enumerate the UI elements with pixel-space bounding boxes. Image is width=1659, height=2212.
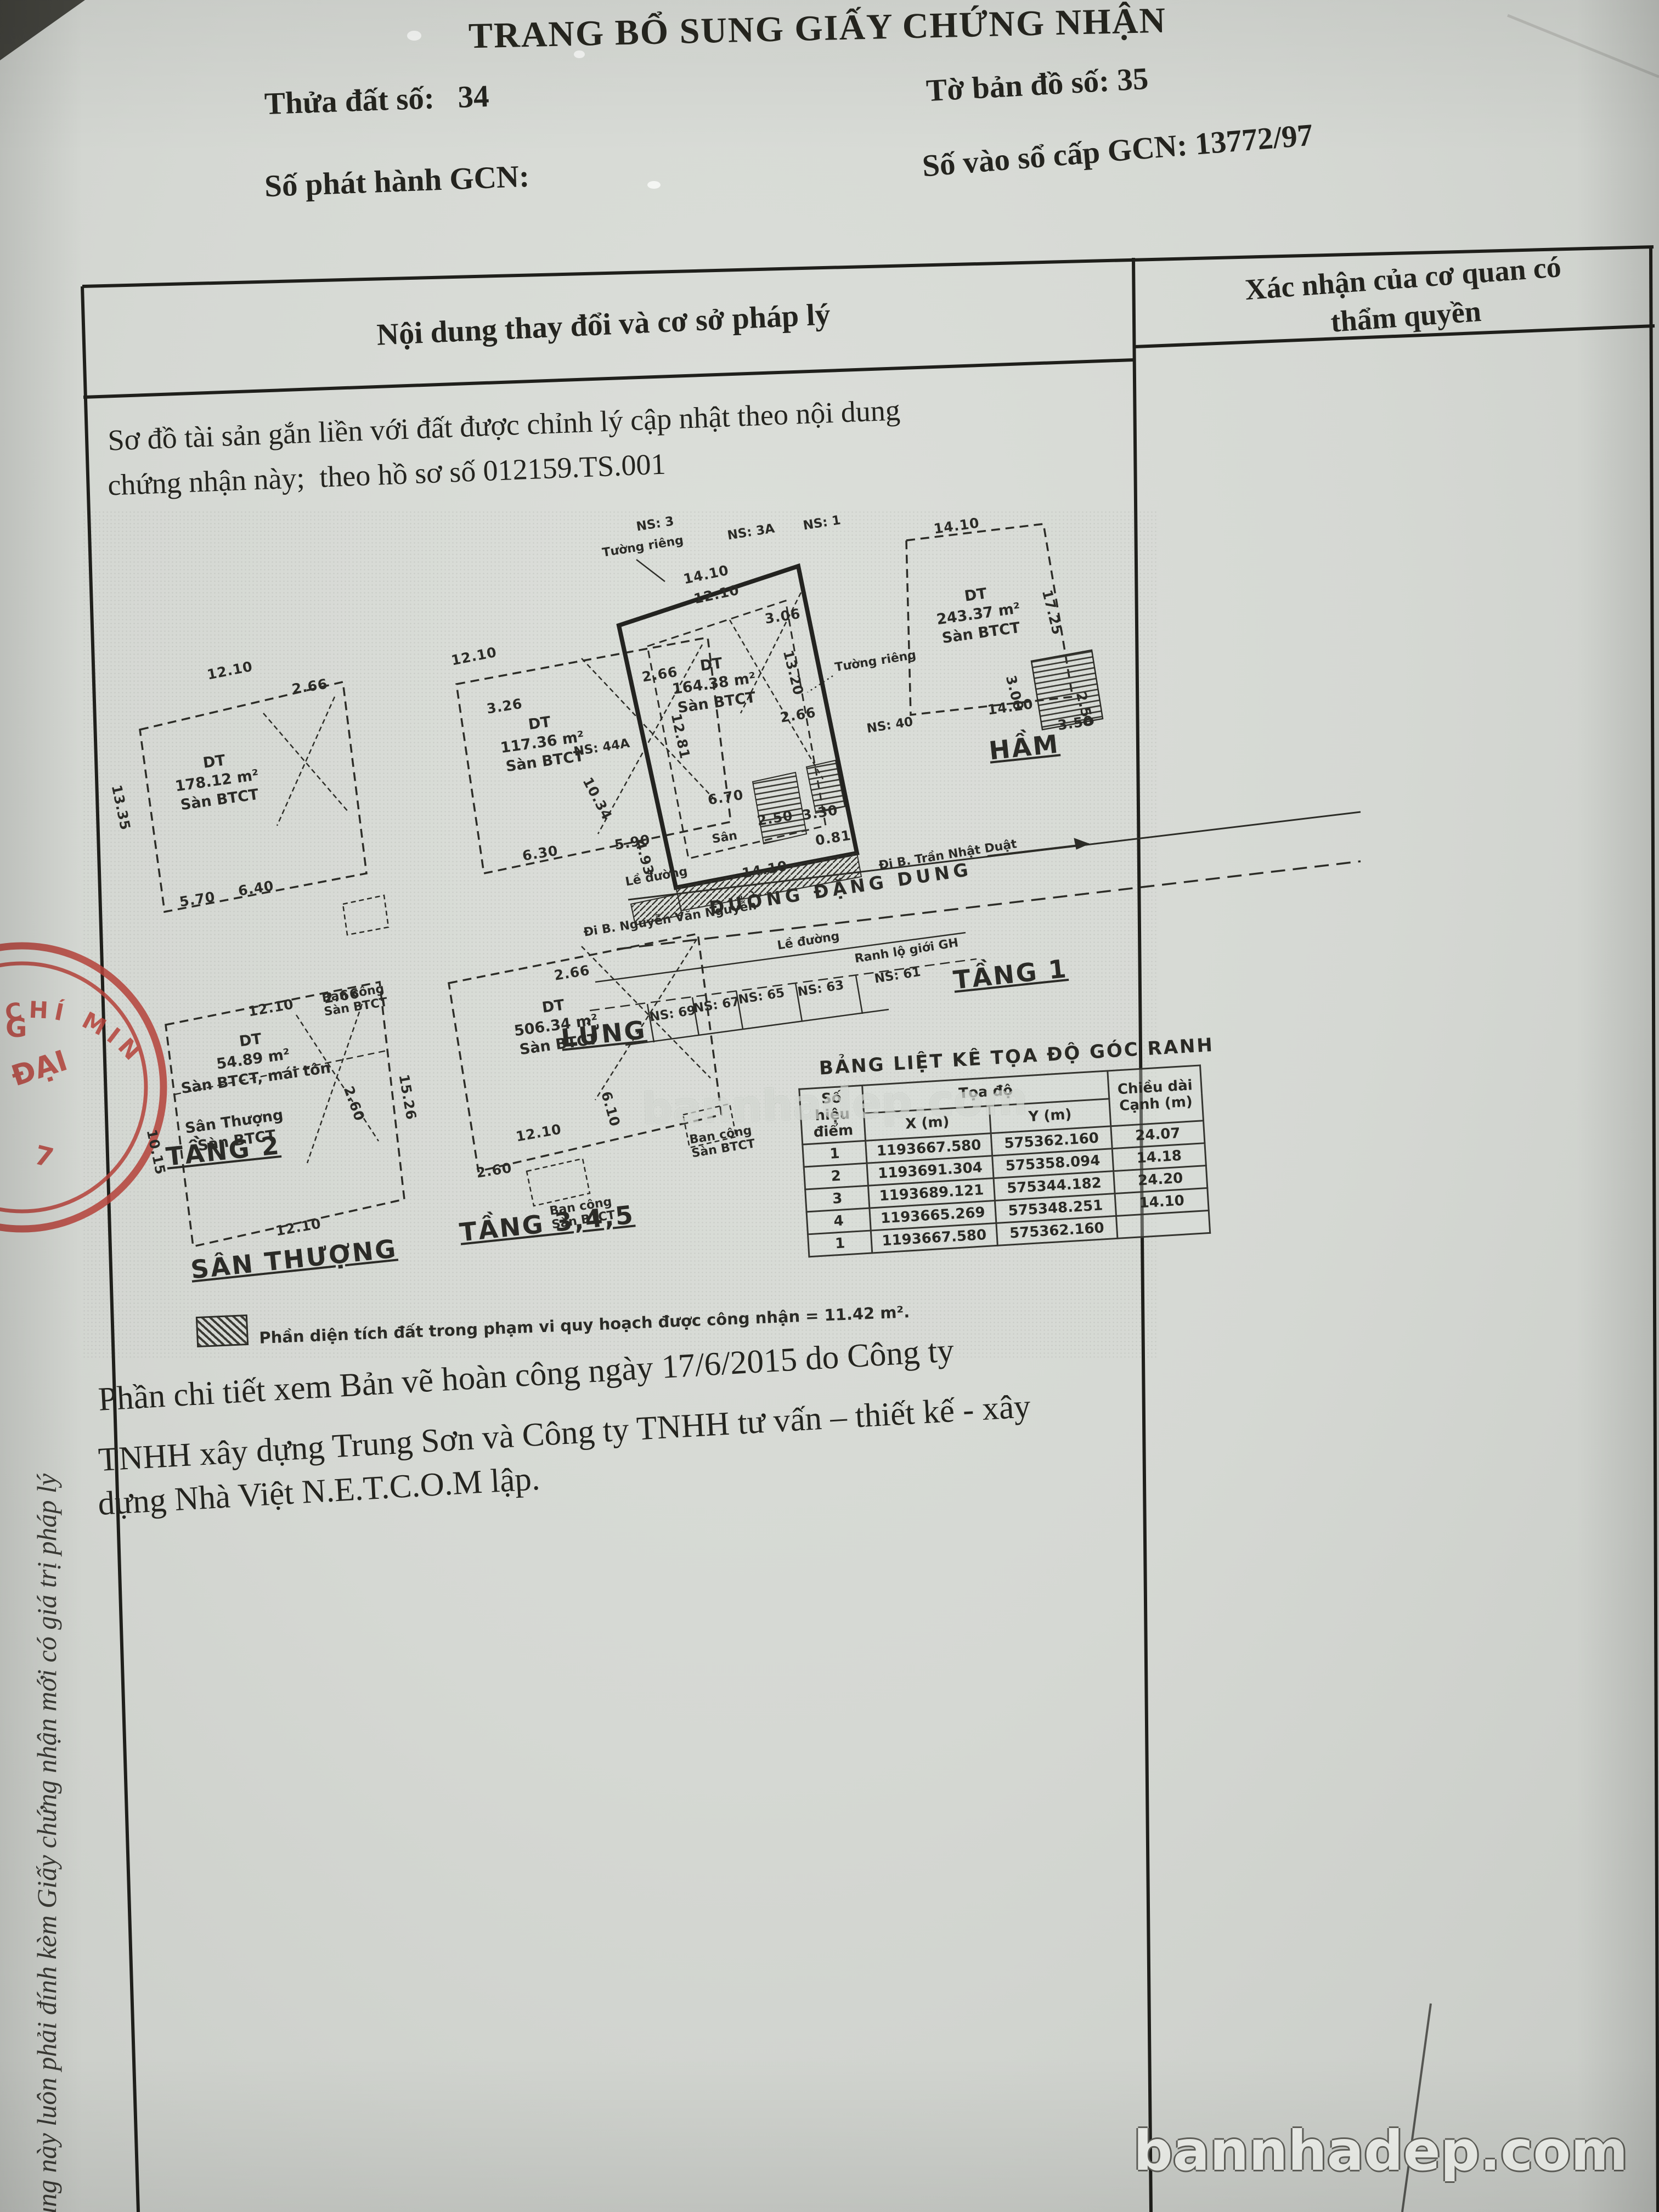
diagram-label: Ranh lộ giới GH bbox=[854, 936, 960, 966]
diagram-label: NS: 69 bbox=[648, 1003, 697, 1025]
diagram-label: NS: 61 bbox=[873, 965, 922, 986]
diagram-label: 3.50 bbox=[1057, 713, 1094, 733]
coord-point: 4 bbox=[806, 1208, 871, 1234]
diagram-label: NS: 3 bbox=[635, 514, 675, 534]
diagram-label: 6.10 bbox=[598, 1090, 623, 1128]
diagram-label: 12.10 bbox=[274, 1215, 323, 1239]
diagram-label: Tường riêng bbox=[834, 648, 917, 675]
diagram-label: Sân bbox=[711, 829, 738, 847]
diagram-label: Lề đường bbox=[776, 929, 840, 953]
diagram-label: 17.25 bbox=[1039, 588, 1065, 637]
area-ham: DT 243.37 m² Sàn BTCT bbox=[933, 580, 1024, 649]
diagram-label: 2.66 bbox=[553, 962, 591, 984]
diagram-label: 2.60 bbox=[475, 1160, 513, 1181]
diagram-label: Lề đường bbox=[624, 865, 689, 889]
diagram-label: NS: 67 bbox=[692, 995, 741, 1016]
diagram-label: NS: 3A bbox=[726, 521, 776, 543]
coordinate-table: BẢNG LIỆT KÊ TỌA ĐỘ GÓC RANH Số hiệu điể… bbox=[797, 1034, 1225, 1257]
area-lung: DT 117.36 m² Sàn BTCT bbox=[496, 708, 588, 777]
diagram-label: 12.10 bbox=[692, 582, 741, 607]
diagram-label: 10.34 bbox=[579, 775, 615, 823]
side-margin-note: ung này luôn phải đính kèm Giấy chứng nh… bbox=[31, 959, 63, 2212]
diagram-label: NS: 65 bbox=[737, 986, 786, 1007]
diagram-label: 6.30 bbox=[521, 843, 559, 864]
diagram-label: Tường riêng bbox=[601, 534, 685, 560]
diagram-label: 14.10 bbox=[741, 857, 789, 881]
diagram-label: 3.26 bbox=[486, 696, 523, 717]
diagram-label: Đi B. Nguyễn Văn Nguyễn bbox=[583, 899, 758, 940]
scanned-certificate-page: TPHỒ CHÍ MINH ĐẠI G 7 TRANG BỔ SUNG GIẤY… bbox=[0, 0, 1659, 2212]
coord-len bbox=[1116, 1210, 1210, 1238]
diagram-label: 3.30 bbox=[801, 802, 839, 823]
diagram-label: 3.06 bbox=[764, 606, 802, 627]
diagram-label: 2.66 bbox=[291, 676, 329, 697]
watermark: bannhadep.com bbox=[1133, 2119, 1628, 2183]
diagram-label: 14.10 bbox=[933, 515, 980, 537]
diagram-label: 2.60 bbox=[341, 1084, 368, 1124]
plan-name-san-thuong: SÂN THƯỢNG bbox=[189, 1233, 399, 1284]
coord-point: 1 bbox=[808, 1231, 872, 1257]
area-tang-2: DT 178.12 m² Sàn BTCT bbox=[171, 747, 263, 816]
diagram-label: 6.70 bbox=[707, 787, 744, 808]
diagram-label: 14.10 bbox=[682, 562, 730, 588]
diagram-label: 12.10 bbox=[450, 644, 498, 669]
diagram-label: 12.10 bbox=[206, 658, 254, 683]
diagram-label: 12.81 bbox=[668, 712, 693, 760]
diagram-label: NS: 1 bbox=[802, 513, 842, 533]
coord-point: 3 bbox=[805, 1186, 870, 1212]
plan-name-ham: HẦM bbox=[988, 729, 1061, 766]
area-tang-1: DT 164.38 m² Sàn BTCT bbox=[668, 650, 760, 719]
watermark-faint: bannhadep.com bbox=[641, 1075, 1028, 1134]
diagram-label: 6.40 bbox=[237, 878, 275, 899]
diagram-label: 15.26 bbox=[396, 1073, 419, 1121]
coord-point: 1 bbox=[803, 1141, 867, 1167]
diagram-label: 13.20 bbox=[780, 648, 806, 697]
plan-name-tang-1: TẦNG 1 bbox=[952, 953, 1069, 995]
diagram-label: 10.15 bbox=[144, 1128, 169, 1176]
diagram-label: NS: 40 bbox=[866, 715, 914, 736]
legend-hatch-swatch bbox=[196, 1314, 249, 1347]
diagram-label: NS: 63 bbox=[797, 978, 845, 1000]
diagram-label: 2.66 bbox=[779, 704, 817, 726]
diagram-label: 12.10 bbox=[247, 996, 295, 1019]
area-san-thuong: DT 54.89 m² Sàn BTCT, mái tôn bbox=[174, 1020, 332, 1099]
coord-col-len: Chiều dài Cạnh (m) bbox=[1108, 1065, 1204, 1126]
diagram-label: 13.35 bbox=[109, 783, 134, 832]
diagram-label: 0.81 bbox=[814, 827, 852, 849]
diagram-label: 12.10 bbox=[515, 1121, 563, 1144]
diagram-label: 2.50 bbox=[756, 808, 794, 829]
area-tang-345: DT 506.34 m² Sàn BTCT bbox=[510, 991, 602, 1060]
diagram-label: 5.70 bbox=[178, 889, 216, 910]
coord-point: 2 bbox=[804, 1163, 868, 1189]
